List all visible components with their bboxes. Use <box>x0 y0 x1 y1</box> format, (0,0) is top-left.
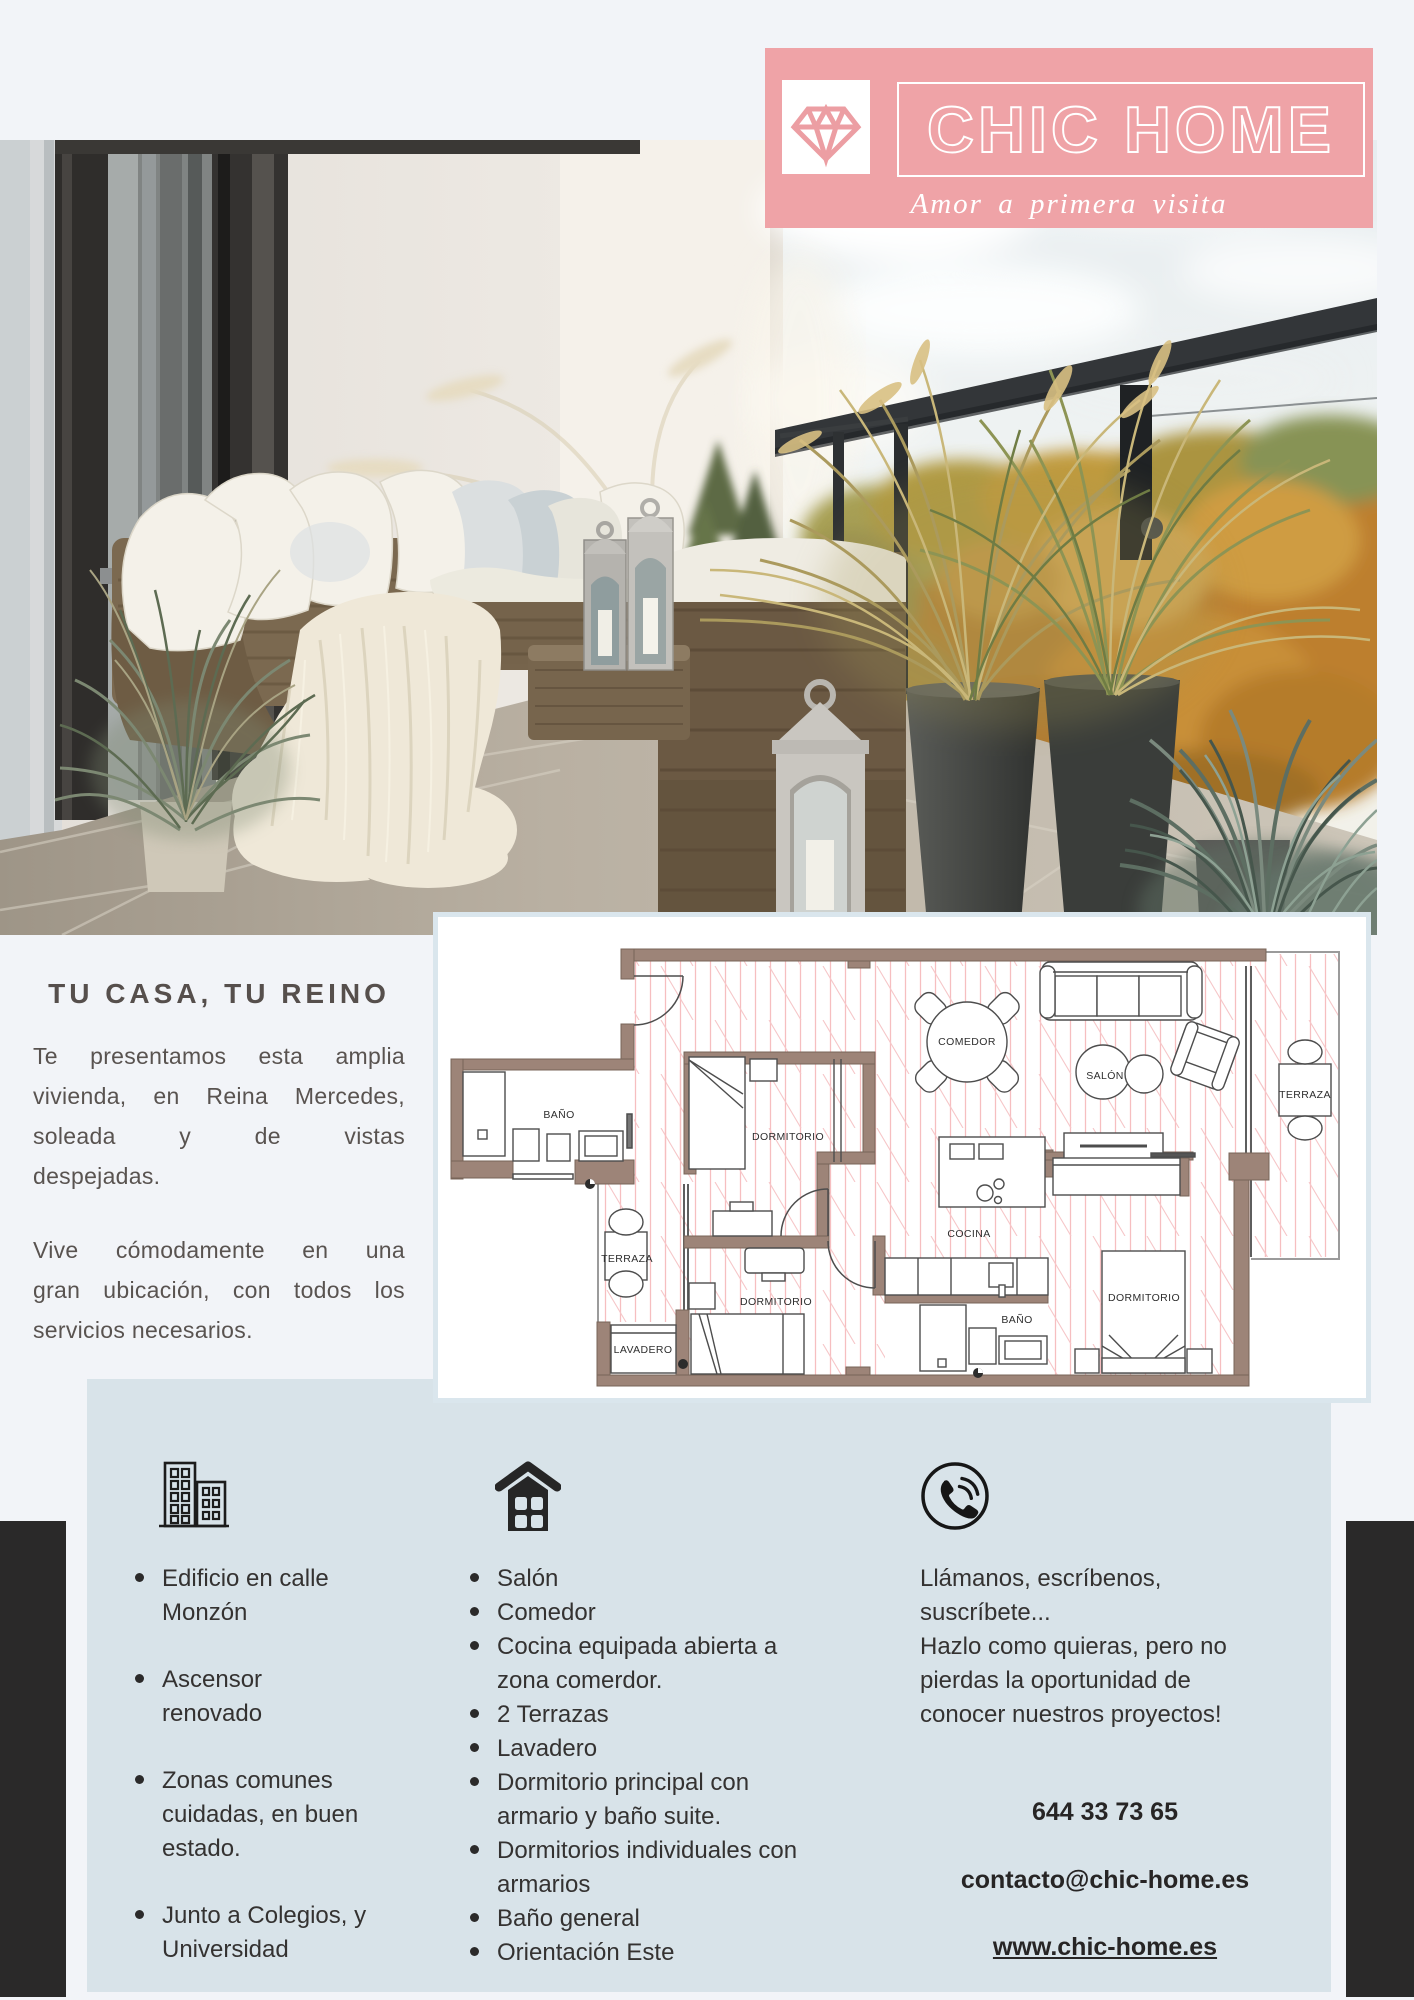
svg-text:DORMITORIO: DORMITORIO <box>740 1296 812 1308</box>
svg-text:COCINA: COCINA <box>947 1228 990 1240</box>
svg-text:LAVADERO: LAVADERO <box>614 1344 673 1356</box>
svg-text:BAÑO: BAÑO <box>1001 1313 1032 1326</box>
svg-text:TERRAZA: TERRAZA <box>1279 1089 1331 1101</box>
svg-text:DORMITORIO: DORMITORIO <box>752 1131 824 1143</box>
svg-text:SALÓN: SALÓN <box>1086 1069 1124 1082</box>
svg-text:BAÑO: BAÑO <box>543 1108 574 1121</box>
svg-text:TERRAZA: TERRAZA <box>601 1253 653 1265</box>
svg-text:COMEDOR: COMEDOR <box>938 1036 996 1048</box>
svg-text:DORMITORIO: DORMITORIO <box>1108 1292 1180 1304</box>
